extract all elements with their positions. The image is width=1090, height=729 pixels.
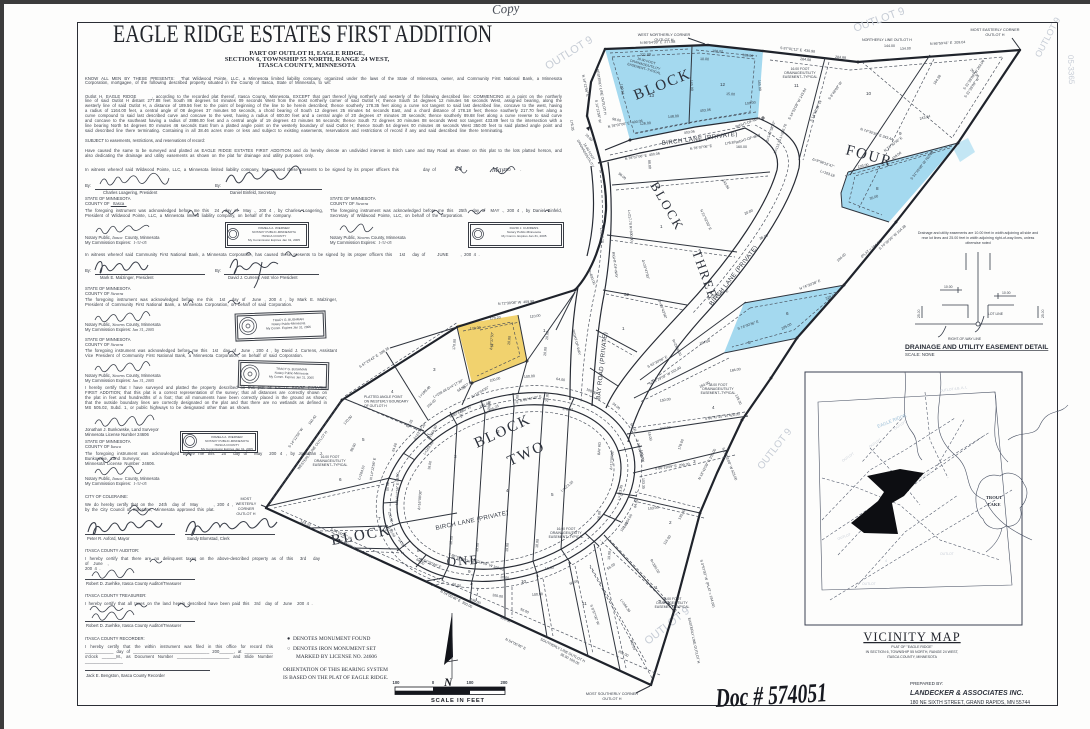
svg-text:100.00: 100.00	[492, 593, 504, 599]
svg-text:MOST SOUTHERLY CORNER: MOST SOUTHERLY CORNER	[586, 692, 639, 696]
svg-text:3: 3	[693, 459, 696, 464]
svg-text:103.35: 103.35	[641, 478, 645, 489]
svg-text:WESTERLY: WESTERLY	[236, 502, 257, 506]
svg-text:EASEMENT–TYPICAL: EASEMENT–TYPICAL	[549, 535, 584, 539]
svg-text:TROUT: TROUT	[986, 495, 1002, 500]
svg-text:SCALE IN FEET: SCALE IN FEET	[431, 698, 485, 704]
svg-text:16.00: 16.00	[427, 461, 433, 471]
svg-text:10.00: 10.00	[700, 57, 709, 61]
svg-text:178.87: 178.87	[724, 140, 736, 146]
svg-text:EASEMENT–TYPICAL: EASEMENT–TYPICAL	[783, 75, 818, 79]
svg-text:194.00: 194.00	[836, 252, 847, 262]
svg-text:ORIENTATION OF THIS BEARING SY: ORIENTATION OF THIS BEARING SYSTEM	[283, 667, 388, 673]
svg-text:S 14°12'56" W: S 14°12'56" W	[288, 427, 305, 449]
svg-text:L=123.35: L=123.35	[560, 480, 574, 493]
svg-text:25.00: 25.00	[1041, 309, 1045, 318]
svg-text:OUTLOT: OUTLOT	[940, 552, 954, 556]
svg-text:S 8°48'09" W: S 8°48'09" W	[828, 80, 844, 100]
svg-text:OUTLOT H: OUTLOT H	[654, 38, 673, 42]
svg-text:7: 7	[378, 516, 381, 521]
svg-text:R=600.00: R=600.00	[587, 269, 596, 285]
svg-text:144.00: 144.00	[884, 44, 895, 48]
svg-text:N 14°12'56" E: N 14°12'56" E	[581, 74, 590, 97]
svg-text:● DENOTES MONUMENT FOUND: ● DENOTES MONUMENT FOUND	[287, 636, 371, 642]
svg-text:56.00: 56.00	[606, 562, 616, 570]
svg-text:1: 1	[655, 585, 658, 590]
svg-text:170.00: 170.00	[343, 415, 353, 426]
svg-text:56.00: 56.00	[597, 511, 602, 520]
svg-text:176.87: 176.87	[562, 407, 573, 412]
svg-text:0: 0	[432, 680, 435, 685]
svg-text:2: 2	[491, 343, 494, 348]
svg-text:EASEMENT–TYPICAL: EASEMENT–TYPICAL	[313, 463, 348, 467]
svg-text:S 67°29'42" E 398.35: S 67°29'42" E 398.35	[358, 346, 390, 369]
svg-text:64.00: 64.00	[556, 377, 565, 382]
svg-text:Δ=9°08'12"47": Δ=9°08'12"47"	[812, 157, 836, 169]
svg-text:12: 12	[720, 82, 726, 87]
svg-text:88.00: 88.00	[647, 160, 652, 169]
svg-text:247.00: 247.00	[660, 425, 671, 430]
svg-text:OUTLOT 9: OUTLOT 9	[852, 5, 906, 35]
svg-text:284.88: 284.88	[835, 55, 846, 60]
svg-text:5: 5	[551, 492, 554, 497]
svg-text:9: 9	[468, 569, 471, 574]
svg-text:LOT LINE: LOT LINE	[988, 312, 1004, 316]
svg-text:150.00: 150.00	[659, 397, 671, 403]
svg-text:11: 11	[582, 601, 587, 606]
svg-text:RIGHT-OF-WAY: RIGHT-OF-WAY	[571, 329, 582, 356]
svg-text:L=103.18: L=103.18	[820, 169, 836, 178]
svg-text:4: 4	[885, 559, 887, 563]
svg-text:243.84: 243.84	[919, 114, 931, 121]
svg-text:19.00: 19.00	[505, 543, 510, 552]
svg-text:143.84: 143.84	[721, 179, 730, 191]
svg-text:100.00: 100.00	[387, 511, 394, 523]
svg-text:2: 2	[669, 520, 672, 525]
svg-text:N 86°59'41" E 209.04: N 86°59'41" E 209.04	[930, 40, 966, 46]
svg-text:100.00: 100.00	[532, 592, 543, 597]
svg-text:LANDECKER & ASSOCIATES INC.: LANDECKER & ASSOCIATES INC.	[910, 690, 1024, 697]
svg-text:178.00: 178.00	[677, 439, 685, 451]
svg-text:1: 1	[543, 328, 546, 333]
svg-text:6: 6	[339, 477, 342, 482]
svg-text:194.00: 194.00	[699, 339, 711, 346]
svg-text:Δ=13°08'08": Δ=13°08'08"	[609, 449, 615, 470]
svg-text:20.00: 20.00	[543, 347, 548, 356]
svg-text:5: 5	[362, 437, 365, 442]
svg-text:170.00: 170.00	[452, 339, 457, 350]
svg-text:N 74°30'36" E 343.44: N 74°30'36" E 343.44	[860, 127, 894, 141]
svg-text:Doc # 574051: Doc # 574051	[714, 678, 828, 714]
svg-text:NORTHERLY LINE OUTLOT H: NORTHERLY LINE OUTLOT H	[862, 38, 912, 42]
svg-text:8: 8	[876, 186, 879, 191]
svg-text:10.00: 10.00	[1002, 291, 1011, 295]
svg-text:N 78°07'06" E: N 78°07'06" E	[690, 144, 713, 151]
svg-text:3: 3	[454, 454, 457, 459]
svg-text:192.42: 192.42	[308, 414, 318, 425]
svg-text:rear lot lines and 25.00 feet: rear lot lines and 25.00 feet in width a…	[922, 236, 1035, 240]
svg-text:103.00: 103.00	[648, 505, 659, 510]
svg-text:98.00: 98.00	[385, 482, 389, 491]
svg-text:15.00: 15.00	[726, 92, 735, 96]
svg-text:N 14°12'56" E 98.00: N 14°12'56" E 98.00	[395, 473, 400, 505]
svg-text:LAKE: LAKE	[987, 502, 1000, 507]
svg-text:10: 10	[521, 579, 527, 584]
svg-text:ON WESTERLY BOUNDARY: ON WESTERLY BOUNDARY	[364, 400, 409, 404]
svg-text:PREPARED BY:: PREPARED BY:	[910, 681, 943, 686]
svg-text:S 14°52'09" W 143.84: S 14°52'09" W 143.84	[787, 88, 807, 121]
svg-text:L=199.48: L=199.48	[418, 385, 432, 399]
svg-text:20.00: 20.00	[744, 208, 754, 215]
svg-text:OUTLOT 9: OUTLOT 9	[1033, 16, 1062, 59]
svg-text:10.00: 10.00	[944, 285, 953, 289]
svg-text:10: 10	[866, 91, 872, 96]
svg-text:20.00: 20.00	[545, 331, 550, 340]
svg-text:THREE: THREE	[689, 248, 721, 302]
svg-text:184.00: 184.00	[729, 367, 741, 373]
svg-text:264.08: 264.08	[800, 57, 811, 62]
svg-text:10.00: 10.00	[500, 575, 509, 580]
svg-text:S 14°12'56" W: S 14°12'56" W	[594, 99, 602, 123]
svg-text:05-3365: 05-3365	[1066, 55, 1076, 85]
svg-text:64.00: 64.00	[629, 423, 637, 433]
svg-text:34.00: 34.00	[397, 538, 405, 548]
svg-text:100: 100	[393, 680, 401, 685]
svg-text:1: 1	[622, 326, 625, 331]
svg-text:N 74°30'36" E: N 74°30'36" E	[799, 279, 822, 291]
svg-text:L=217.70 R=600.00: L=217.70 R=600.00	[627, 210, 634, 242]
svg-text:N 54°00'46" E 350.00: N 54°00'46" E 350.00	[440, 589, 473, 609]
svg-text:R=330.00: R=330.00	[649, 559, 660, 575]
svg-text:4: 4	[391, 389, 394, 394]
svg-text:19.00: 19.00	[607, 551, 612, 560]
svg-text:R=113.35 L=296.70: R=113.35 L=296.70	[773, 123, 788, 154]
svg-text:100.00: 100.00	[489, 376, 501, 383]
svg-text:MOST EASTERLY CORNER: MOST EASTERLY CORNER	[971, 28, 1020, 32]
svg-text:EASTERLY LINE OUTLOT H: EASTERLY LINE OUTLOT H	[687, 617, 701, 664]
svg-text:64.00: 64.00	[633, 499, 639, 509]
svg-text:98.00: 98.00	[617, 172, 626, 181]
svg-text:350.00: 350.00	[500, 615, 512, 623]
svg-text:9: 9	[899, 131, 902, 136]
svg-text:200: 200	[501, 680, 509, 685]
svg-text:CORNER: CORNER	[238, 507, 255, 511]
svg-text:L=264.57: L=264.57	[357, 465, 366, 481]
svg-text:N 86°47'40" E: N 86°47'40" E	[519, 394, 542, 403]
svg-text:S 9°57'00" W: S 9°57'00" W	[589, 604, 600, 626]
svg-text:RIGHT-OF-WAY: RIGHT-OF-WAY	[735, 133, 762, 145]
svg-text:otherwise noted: otherwise noted	[965, 241, 990, 245]
svg-text:OUTLOT H: OUTLOT H	[985, 33, 1004, 37]
svg-text:20.00: 20.00	[545, 393, 550, 402]
svg-text:OUTLOT H: OUTLOT H	[236, 512, 255, 516]
svg-text:134.00: 134.00	[900, 46, 911, 51]
svg-text:Δ=149°58'32": Δ=149°58'32"	[765, 120, 776, 143]
svg-text:10.00: 10.00	[545, 566, 554, 571]
svg-text:18.00: 18.00	[535, 539, 540, 548]
svg-text:○ DENOTES IRON MONUMENT SET: ○ DENOTES IRON MONUMENT SET	[287, 646, 377, 652]
svg-text:ONE: ONE	[446, 552, 480, 569]
svg-text:25.00: 25.00	[917, 309, 921, 318]
svg-text:PLAT OF "EAGLE RIDGE": PLAT OF "EAGLE RIDGE"	[891, 645, 933, 649]
svg-text:3: 3	[433, 367, 436, 372]
svg-text:Δ=20°47'30": Δ=20°47'30"	[641, 259, 650, 280]
svg-text:OUTLOT: OUTLOT	[862, 582, 876, 586]
svg-text:WEST NORTHERLY CORNER: WEST NORTHERLY CORNER	[638, 33, 691, 37]
svg-text:4: 4	[712, 405, 715, 410]
svg-text:SCALE: NONE: SCALE: NONE	[905, 352, 935, 357]
svg-text:MOST: MOST	[241, 497, 253, 501]
svg-text:N 18°42'09" E 159.00: N 18°42'09" E 159.00	[697, 448, 717, 480]
svg-text:8: 8	[417, 548, 420, 553]
svg-text:IN SECTION 6, TOWNSHIP 55 NORT: IN SECTION 6, TOWNSHIP 55 NORTH, RANGE 2…	[866, 650, 959, 654]
svg-text:EASEMENT–TYPICAL: EASEMENT–TYPICAL	[701, 391, 736, 395]
svg-text:135.00: 135.00	[734, 394, 742, 406]
svg-text:N 54°00'46" E: N 54°00'46" E	[505, 637, 527, 651]
svg-text:20.00: 20.00	[507, 336, 512, 345]
svg-text:56.00: 56.00	[520, 607, 530, 614]
svg-text:66.00: 66.00	[452, 582, 462, 588]
svg-text:64.00: 64.00	[457, 385, 467, 393]
svg-text:L=104.30: L=104.30	[619, 598, 631, 613]
svg-text:EASEMENT–TYPICAL: EASEMENT–TYPICAL	[655, 605, 690, 609]
svg-text:ITASCA COUNTY, MINNESOTA: ITASCA COUNTY, MINNESOTA	[887, 655, 938, 659]
svg-text:MARKED BY LICENSE NO. 24606: MARKED BY LICENSE NO. 24606	[296, 654, 377, 660]
svg-text:98.00: 98.00	[612, 117, 622, 123]
svg-text:BLOCK: BLOCK	[647, 179, 687, 233]
svg-text:176.35: 176.35	[569, 119, 575, 131]
svg-text:5: 5	[748, 340, 751, 345]
svg-text:BAY RD: BAY RD	[597, 441, 602, 455]
svg-text:IS BASED ON THE PLAT OF EAGLE: IS BASED ON THE PLAT OF EAGLE RIDGE.	[283, 675, 388, 681]
svg-text:OUTLOT H: OUTLOT H	[602, 697, 621, 701]
svg-text:116.00: 116.00	[663, 534, 672, 545]
svg-text:S 0°57'00" W (PLAT = 194.00): S 0°57'00" W (PLAT = 194.00)	[699, 559, 716, 608]
svg-text:92.35: 92.35	[406, 419, 414, 429]
svg-text:6: 6	[786, 311, 789, 316]
svg-text:S 21°03'08" W 423.00: S 21°03'08" W 423.00	[721, 447, 738, 481]
svg-text:18.00: 18.00	[449, 536, 454, 545]
svg-text:OUTLOT 9: OUTLOT 9	[756, 426, 795, 472]
svg-text:RIGHT-OF-WAY: RIGHT-OF-WAY	[611, 252, 619, 279]
svg-text:184.38: 184.38	[933, 74, 942, 85]
svg-text:100.00: 100.00	[712, 49, 723, 54]
svg-text:221.88: 221.88	[640, 53, 651, 57]
svg-text:PLATTED ANGLE POINT: PLATTED ANGLE POINT	[364, 395, 403, 399]
svg-text:16.00: 16.00	[647, 431, 653, 441]
svg-text:VICINITY MAP: VICINITY MAP	[863, 630, 960, 644]
svg-text:20.00: 20.00	[459, 409, 464, 418]
svg-text:98.00: 98.00	[349, 443, 357, 453]
svg-text:RIGHT-OF-WAY LINE: RIGHT-OF-WAY LINE	[948, 337, 982, 341]
svg-text:20.00: 20.00	[487, 401, 492, 410]
svg-text:100: 100	[467, 680, 475, 685]
svg-text:OUTLOT 9: OUTLOT 9	[642, 605, 692, 647]
svg-text:BIRCH LANE (PRIVATE): BIRCH LANE (PRIVATE)	[435, 510, 509, 532]
svg-text:110.00: 110.00	[530, 314, 541, 319]
svg-text:19.00: 19.00	[515, 395, 520, 404]
svg-text:DRAINAGE AND UTILITY EASEMENT: DRAINAGE AND UTILITY EASEMENT DETAIL	[905, 344, 1048, 351]
svg-text:100.00: 100.00	[524, 374, 535, 379]
svg-text:OUTLOT 9: OUTLOT 9	[543, 34, 595, 73]
svg-text:180 NE SIXTH STREET, GRAND: 180 NE SIXTH STREET, GRAND RAPIDS, MN 55…	[910, 700, 1030, 706]
svg-text:2: 2	[497, 429, 500, 434]
svg-text:SOUTHERLY LINE OUTLOT H: SOUTHERLY LINE OUTLOT H	[540, 637, 586, 663]
svg-text:4: 4	[506, 488, 509, 493]
svg-text:403.06: 403.06	[684, 129, 695, 134]
svg-text:N 14°12'56" E: N 14°12'56" E	[369, 457, 377, 480]
svg-text:19.00: 19.00	[475, 543, 480, 552]
svg-text:100.00: 100.00	[620, 521, 630, 532]
svg-text:52: 52	[624, 292, 630, 297]
svg-text:D=19°43'56": D=19°43'56"	[657, 299, 668, 320]
svg-text:100.00: 100.00	[426, 398, 437, 408]
svg-text:11: 11	[794, 83, 799, 88]
svg-text:13: 13	[649, 93, 655, 98]
svg-text:160.00: 160.00	[736, 145, 747, 149]
svg-text:N 21°52'09" E: N 21°52'09" E	[699, 209, 712, 232]
svg-text:202.00: 202.00	[629, 639, 637, 651]
svg-text:Δ=16°08'08": Δ=16°08'08"	[417, 489, 423, 510]
svg-text:Drainage and utility easements: Drainage and utility easements are 10.00…	[918, 231, 1038, 235]
svg-text:135.00: 135.00	[677, 509, 686, 521]
svg-text:OF OUTLOT H: OF OUTLOT H	[364, 404, 387, 408]
svg-text:1: 1	[660, 224, 663, 229]
